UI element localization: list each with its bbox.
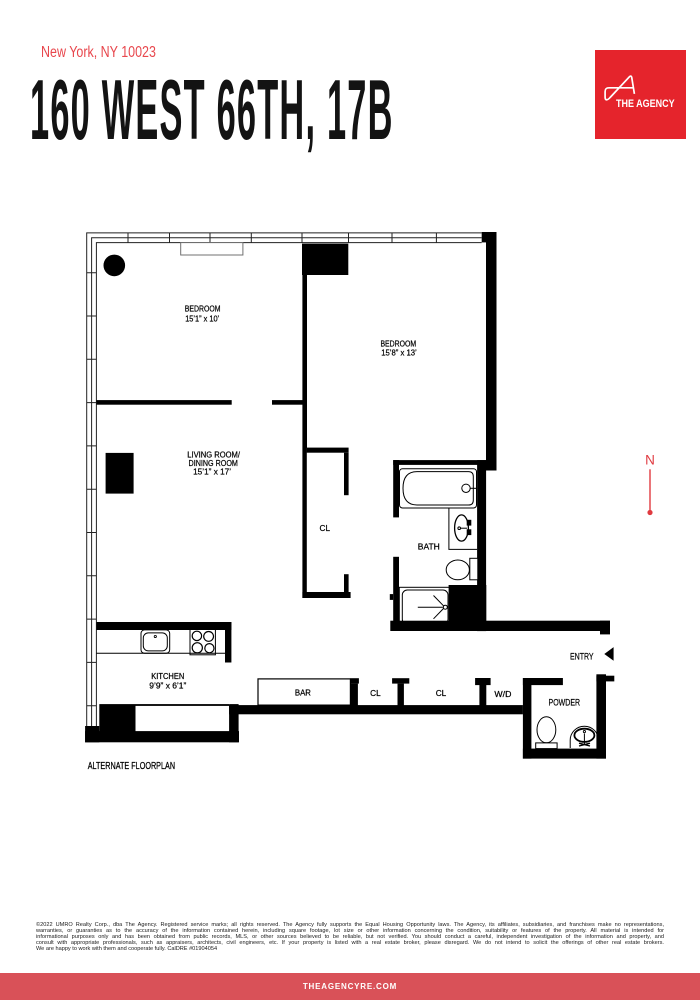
svg-text:ENTRY: ENTRY xyxy=(570,651,594,661)
svg-text:BEDROOM: BEDROOM xyxy=(380,340,416,349)
svg-text:15’1” x 10’: 15’1” x 10’ xyxy=(185,315,219,324)
svg-text:N: N xyxy=(645,452,655,467)
svg-text:ALTERNATE FLOORPLAN: ALTERNATE FLOORPLAN xyxy=(88,761,175,772)
svg-text:BAR: BAR xyxy=(295,689,311,698)
svg-text:BEDROOM: BEDROOM xyxy=(185,305,221,314)
svg-text:KITCHEN: KITCHEN xyxy=(151,672,184,681)
svg-text:15’8” x 13’: 15’8” x 13’ xyxy=(381,349,417,358)
svg-text:CL: CL xyxy=(436,689,447,698)
svg-text:BATH: BATH xyxy=(418,542,440,551)
svg-text:15’1” x 17’: 15’1” x 17’ xyxy=(193,468,231,477)
svg-text:9’9” x 6’1”: 9’9” x 6’1” xyxy=(149,682,186,691)
svg-text:W/D: W/D xyxy=(494,690,511,699)
svg-text:CL: CL xyxy=(320,524,331,533)
svg-text:CL: CL xyxy=(370,689,381,698)
svg-text:POWDER: POWDER xyxy=(549,698,581,708)
